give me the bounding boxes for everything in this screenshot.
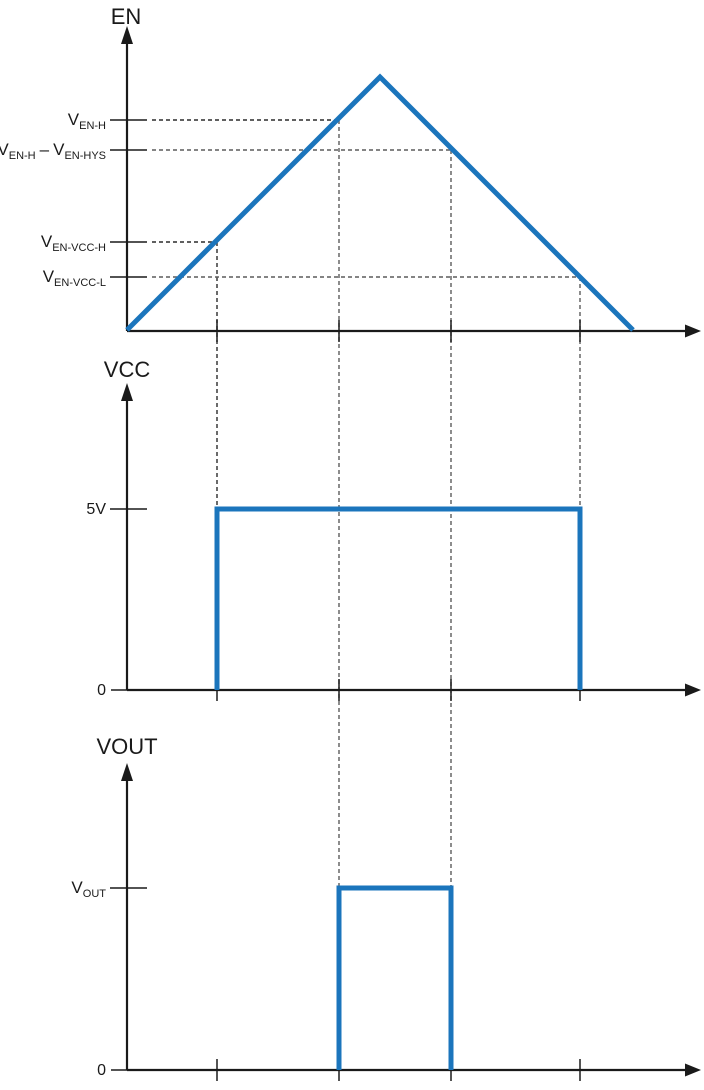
label-base: V [53,140,65,159]
vout-panel: VOUT VOUT 0 [71,734,701,1081]
label-base: V [71,878,83,897]
vcc-level-label-zero: 0 [97,682,106,699]
label-sub: EN-H [9,150,36,162]
en-panel: EN VEN-H VEN-H–VEN-HYS VEN-VCC-H VEN-VCC… [0,4,701,342]
timing-diagram-svg: EN VEN-H VEN-H–VEN-HYS VEN-VCC-H VEN-VCC… [0,0,704,1090]
label-sub: EN-HYS [64,150,106,162]
en-panel-title: EN [111,4,142,29]
label-operator: – [40,140,50,159]
en-waveform [127,77,633,330]
timing-diagram-page: EN VEN-H VEN-H–VEN-HYS VEN-VCC-H VEN-VCC… [0,0,704,1090]
label-base: V [68,110,80,129]
vout-waveform [339,888,451,1070]
label-sub: EN-VCC-L [54,277,106,289]
vout-x-axis-arrowhead [685,1064,701,1077]
en-threshold-label-ven-h-minus-hys: VEN-H–VEN-HYS [0,140,106,162]
vout-level-label-vout: VOUT [71,878,106,900]
label-sub: EN-VCC-H [52,242,106,254]
vcc-waveform [217,509,580,690]
vcc-panel: VCC 5V 0 [86,357,701,701]
vcc-x-axis-arrowhead [685,684,701,697]
en-threshold-label-ven-vcc-h: VEN-VCC-H [41,232,106,254]
en-x-axis-arrowhead [685,325,701,338]
vout-panel-title: VOUT [96,734,157,759]
en-threshold-label-ven-h: VEN-H [68,110,106,132]
vcc-panel-title: VCC [104,357,151,382]
vout-y-axis-arrowhead [121,763,133,781]
vcc-y-axis-arrowhead [121,383,133,401]
label-base: V [43,267,55,286]
label-sub: EN-H [79,120,106,132]
en-threshold-label-ven-vcc-l: VEN-VCC-L [43,267,106,289]
dashed-guides [217,120,580,888]
vcc-level-label-5v: 5V [86,501,106,518]
label-base: V [41,232,53,251]
vout-level-label-zero: 0 [97,1062,106,1079]
label-sub: OUT [83,888,107,900]
